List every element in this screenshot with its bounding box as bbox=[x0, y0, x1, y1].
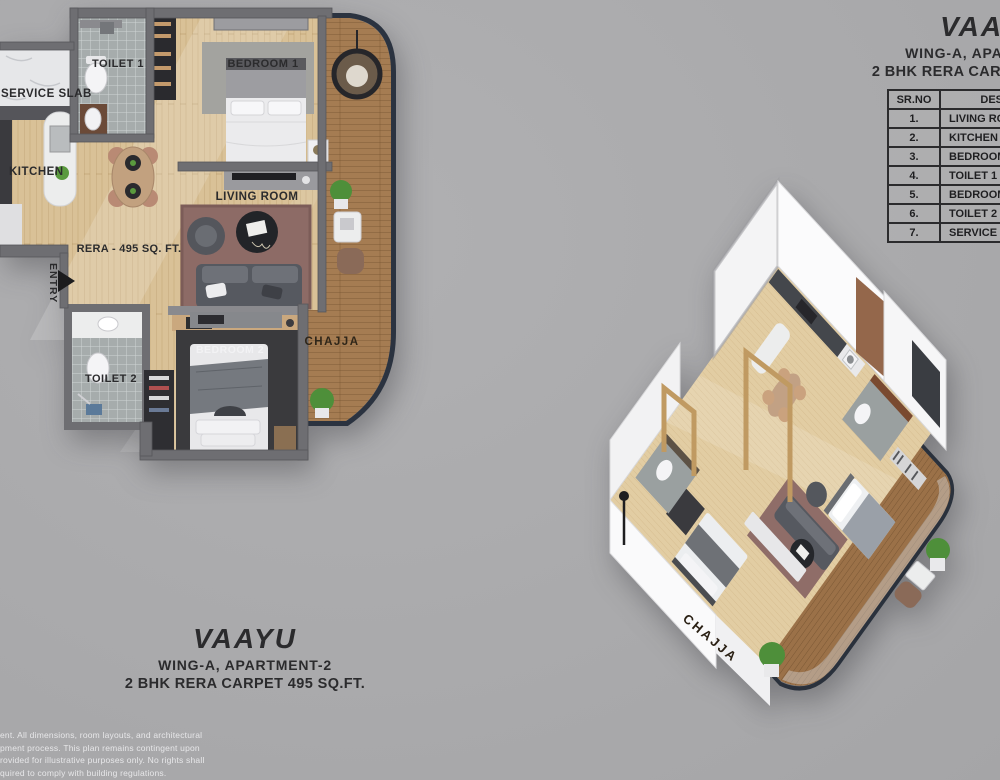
row-description: BEDROOM 1 bbox=[940, 147, 1000, 166]
row-description: KITCHEN bbox=[940, 128, 1000, 147]
balcony-plant bbox=[330, 180, 352, 202]
toilet-2-mat bbox=[86, 404, 102, 415]
bench-items bbox=[198, 315, 224, 324]
disclaimer: ent. All dimensions, room layouts, and a… bbox=[0, 729, 340, 779]
row-description: LIVING ROOM bbox=[940, 109, 1000, 128]
caption-left-title: VAAYU bbox=[105, 624, 385, 653]
floorplan-2d: TOILET 1 SERVICE SLAB KITCHEN BEDROOM 1 … bbox=[0, 0, 430, 640]
disclaimer-line: ent. All dimensions, room layouts, and a… bbox=[0, 729, 340, 742]
header-right: VAAYU WING-A, APARTMENT-2 2 BHK RERA CAR… bbox=[790, 12, 1000, 243]
balcony-chair bbox=[337, 248, 364, 274]
label-kitchen: KITCHEN bbox=[9, 166, 64, 178]
iso-floor-lamp-head bbox=[619, 491, 629, 501]
disclaimer-line: rovided for illustrative purposes only. … bbox=[0, 754, 340, 767]
row-sr: 5. bbox=[888, 185, 940, 204]
table-row: 2. KITCHEN bbox=[888, 128, 1000, 147]
label-living-room: LIVING ROOM bbox=[216, 191, 299, 203]
sofa-back-cushion bbox=[202, 266, 248, 283]
desk-item bbox=[286, 319, 294, 327]
floorplan-sheet: { "colors": { "background": "#aaaaac", "… bbox=[0, 0, 1000, 780]
label-chajja-2d: CHAJJA bbox=[304, 336, 359, 348]
room-table: SR.NO DESCRIPTION 1. LIVING ROOM 2. KITC… bbox=[887, 89, 1000, 243]
bed-2-pillow bbox=[201, 434, 255, 446]
row-sr: 6. bbox=[888, 204, 940, 223]
iso-plant-right-pot bbox=[930, 558, 945, 571]
row-description: TOILET 2 bbox=[940, 204, 1000, 223]
view-3d: CHAJJA bbox=[520, 160, 1000, 740]
row-sr: 1. bbox=[888, 109, 940, 128]
label-bedroom-2: BEDROOM 2 bbox=[196, 344, 264, 356]
toilet-1-shelf bbox=[100, 22, 114, 34]
table-row: 6. TOILET 2 bbox=[888, 204, 1000, 223]
sofa-back-cushion bbox=[252, 266, 298, 283]
row-description: BEDROOM 2 bbox=[940, 185, 1000, 204]
room-table-header-row: SR.NO DESCRIPTION bbox=[888, 90, 1000, 109]
plan-2d-group: TOILET 1 SERVICE SLAB KITCHEN BEDROOM 1 … bbox=[0, 8, 394, 460]
toilet-2-basin bbox=[98, 317, 118, 331]
caption-left: VAAYU WING-A, APARTMENT-2 2 BHK RERA CAR… bbox=[105, 624, 385, 692]
toilet-1-basin bbox=[85, 108, 101, 130]
tray-garnish bbox=[130, 188, 136, 194]
label-rera-area: RERA - 495 SQ. FT. bbox=[77, 243, 182, 255]
row-description: TOILET 1 bbox=[940, 166, 1000, 185]
kitchen-appliance-column bbox=[0, 120, 12, 204]
disclaimer-line: pment process. This plan remains conting… bbox=[0, 742, 340, 755]
header-right-title: VAAYU bbox=[790, 12, 1000, 41]
console-deco bbox=[302, 176, 310, 184]
header-right-detail: 2 BHK RERA CARPET 495 SQ.FT. bbox=[790, 64, 1000, 80]
bed-1-pillow bbox=[268, 101, 301, 115]
room-table-header-srno: SR.NO bbox=[888, 90, 940, 109]
row-sr: 4. bbox=[888, 166, 940, 185]
disclaimer-line: quired to comply with building regulatio… bbox=[0, 767, 340, 780]
plant-pot-2 bbox=[315, 408, 329, 418]
bed-1-blanket bbox=[226, 70, 306, 98]
table-row: 1. LIVING ROOM bbox=[888, 109, 1000, 128]
iso-plant-bottom-pot bbox=[764, 664, 779, 677]
table-row: 4. TOILET 1 bbox=[888, 166, 1000, 185]
row-description: SERVICE SLAB bbox=[940, 223, 1000, 242]
header-right-subtitle: WING-A, APARTMENT-2 bbox=[790, 45, 1000, 61]
room-table-header-description: DESCRIPTION bbox=[940, 90, 1000, 109]
label-toilet-2: TOILET 2 bbox=[85, 373, 137, 385]
bed-2-pillow bbox=[196, 420, 260, 434]
label-bedroom-1: BEDROOM 1 bbox=[227, 58, 298, 70]
table-row: 7. SERVICE SLAB bbox=[888, 223, 1000, 242]
hanging-chair-cushion bbox=[346, 65, 368, 87]
caption-left-detail: 2 BHK RERA CARPET 495 SQ.FT. bbox=[105, 676, 385, 692]
island-sink bbox=[50, 126, 70, 152]
row-sr: 2. bbox=[888, 128, 940, 147]
label-entry: ENTRY bbox=[47, 263, 59, 303]
row-sr: 3. bbox=[888, 147, 940, 166]
cabinet-art bbox=[340, 218, 354, 230]
label-service-slab: SERVICE SLAB bbox=[1, 88, 92, 100]
table-row: 3. BEDROOM 1 bbox=[888, 147, 1000, 166]
tray-garnish bbox=[130, 160, 136, 166]
row-sr: 7. bbox=[888, 223, 940, 242]
bed-1-pillow bbox=[231, 101, 264, 115]
table-row: 5. BEDROOM 2 bbox=[888, 185, 1000, 204]
plant-pot bbox=[334, 199, 348, 209]
tv-screen bbox=[232, 173, 296, 180]
caption-left-subtitle: WING-A, APARTMENT-2 bbox=[105, 657, 385, 673]
bed-2-nightstand bbox=[274, 426, 296, 450]
label-toilet-1: TOILET 1 bbox=[92, 58, 144, 70]
armchair-cushion bbox=[195, 225, 217, 247]
